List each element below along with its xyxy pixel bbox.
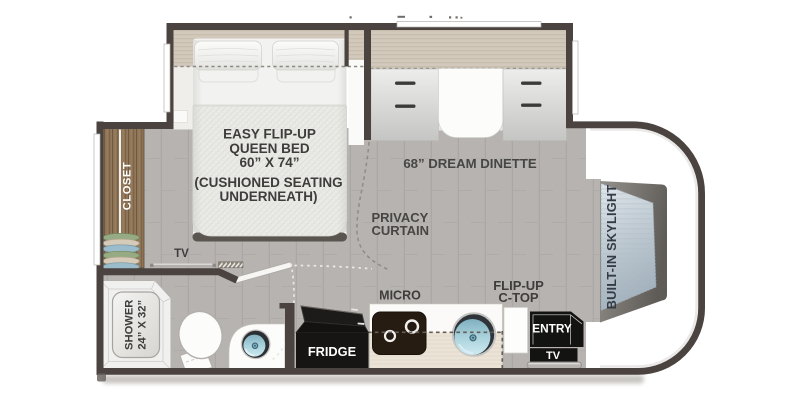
- svg-text:24” X 32”: 24” X 32”: [137, 300, 149, 350]
- svg-text:SHOWER: SHOWER: [124, 300, 136, 350]
- svg-text:EASY FLIP-UP: EASY FLIP-UP: [223, 127, 316, 142]
- svg-text:MICRO: MICRO: [379, 289, 421, 303]
- svg-text:QUEEN BED: QUEEN BED: [229, 141, 310, 156]
- svg-text:C-TOP: C-TOP: [498, 290, 539, 305]
- svg-text:FRIDGE: FRIDGE: [308, 344, 357, 359]
- svg-text:CLOSET: CLOSET: [122, 162, 134, 210]
- svg-text:ENTRY: ENTRY: [532, 322, 572, 336]
- svg-text:68” DREAM DINETTE: 68” DREAM DINETTE: [403, 156, 537, 171]
- svg-text:UNDERNEATH): UNDERNEATH): [220, 189, 318, 204]
- svg-text:(CUSHIONED SEATING: (CUSHIONED SEATING: [194, 175, 342, 190]
- svg-text:60” X 74”: 60” X 74”: [239, 155, 299, 170]
- svg-text:BUILT-IN SKYLIGHT: BUILT-IN SKYLIGHT: [604, 185, 619, 310]
- svg-text:TV: TV: [546, 350, 561, 362]
- svg-text:CURTAIN: CURTAIN: [372, 223, 430, 238]
- svg-text:TV: TV: [174, 248, 189, 260]
